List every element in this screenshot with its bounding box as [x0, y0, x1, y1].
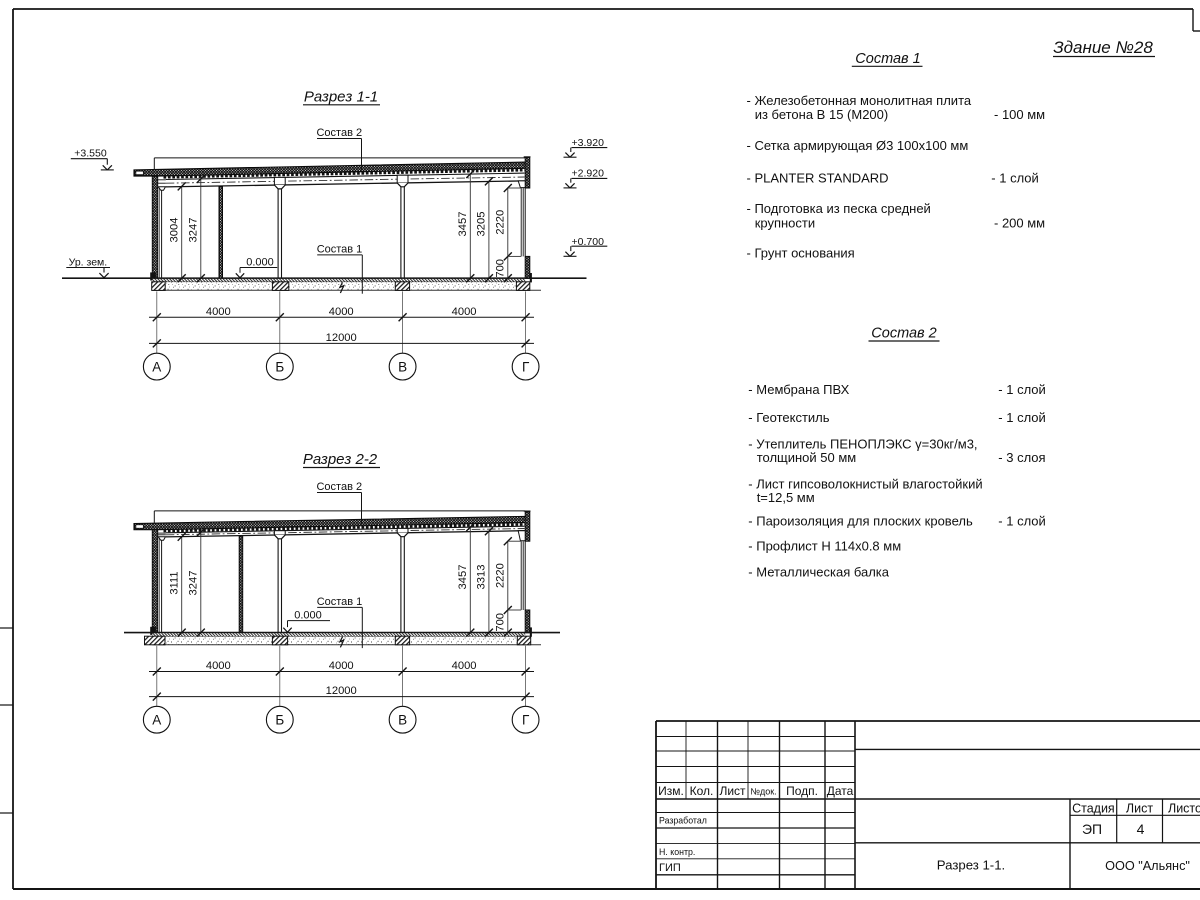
svg-text:- Железобетонная монолитная п: - Железобетонная монолитная плита — [747, 93, 972, 108]
svg-text:- 1 слой: - 1 слой — [991, 171, 1039, 186]
svg-text:Дата: Дата — [827, 784, 854, 798]
svg-text:- 100 мм: - 100 мм — [994, 107, 1045, 122]
svg-text:4000: 4000 — [452, 660, 477, 672]
svg-text:12000: 12000 — [326, 332, 357, 344]
svg-text:3247: 3247 — [188, 218, 200, 243]
svg-text:4000: 4000 — [329, 306, 354, 318]
svg-text:Состав 2: Состав 2 — [871, 326, 936, 342]
svg-text:- 1 слой: - 1 слой — [998, 382, 1046, 397]
svg-text:ГИП: ГИП — [659, 862, 681, 874]
svg-text:В: В — [398, 713, 407, 728]
svg-text:3205: 3205 — [476, 212, 488, 237]
svg-text:3247: 3247 — [188, 571, 200, 596]
svg-text:- Пароизоляция для плоских кро: - Пароизоляция для плоских кровель — [748, 514, 973, 529]
svg-text:Состав 1: Состав 1 — [317, 596, 363, 608]
svg-text:Разрез 1-1.: Разрез 1-1. — [937, 858, 1005, 873]
svg-text:- PLANTER STANDARD: - PLANTER STANDARD — [747, 171, 889, 186]
svg-text:Состав 2: Состав 2 — [316, 481, 362, 493]
svg-text:Г: Г — [522, 360, 530, 375]
svg-text:крупности: крупности — [755, 216, 815, 231]
svg-text:В: В — [398, 360, 407, 375]
svg-text:- Грунт основания: - Грунт основания — [747, 246, 855, 261]
svg-text:t=12,5 мм: t=12,5 мм — [757, 490, 815, 505]
svg-text:3457: 3457 — [457, 565, 469, 590]
svg-text:- 1 слой: - 1 слой — [998, 514, 1046, 529]
svg-text:ООО "Альянс": ООО "Альянс" — [1105, 859, 1190, 873]
svg-text:- Мембрана ПВХ: - Мембрана ПВХ — [748, 382, 849, 397]
svg-text:А: А — [152, 360, 161, 375]
svg-text:Разрез 2-2: Разрез 2-2 — [303, 451, 378, 468]
svg-text:- 200 мм: - 200 мм — [994, 216, 1045, 231]
svg-text:4000: 4000 — [329, 660, 354, 672]
svg-text:Разрез 1-1: Разрез 1-1 — [304, 89, 378, 106]
svg-text:из бетона В 15 (М200): из бетона В 15 (М200) — [755, 107, 889, 122]
svg-text:Г: Г — [522, 713, 530, 728]
svg-text:Кол.: Кол. — [690, 784, 714, 798]
svg-text:4000: 4000 — [452, 306, 477, 318]
svg-text:2220: 2220 — [494, 210, 506, 235]
svg-text:4000: 4000 — [206, 306, 231, 318]
svg-text:Стадия: Стадия — [1072, 802, 1115, 816]
svg-text:+3.550: +3.550 — [74, 148, 107, 160]
svg-text:- 3 слоя: - 3 слоя — [998, 450, 1045, 465]
svg-text:Лист: Лист — [1126, 802, 1153, 816]
svg-text:2220: 2220 — [494, 563, 506, 588]
svg-text:Состав 1: Состав 1 — [317, 243, 363, 255]
svg-text:3313: 3313 — [476, 565, 488, 590]
svg-text:12000: 12000 — [326, 685, 357, 697]
svg-text:700: 700 — [494, 613, 506, 632]
svg-text:4: 4 — [1137, 821, 1145, 837]
svg-text:Подп.: Подп. — [786, 784, 818, 798]
svg-text:Б: Б — [275, 360, 284, 375]
svg-text:Состав 2: Состав 2 — [316, 127, 362, 139]
svg-text:№док.: №док. — [750, 787, 776, 797]
svg-text:Состав 1: Состав 1 — [855, 51, 920, 67]
svg-text:4000: 4000 — [206, 660, 231, 672]
svg-text:Б: Б — [275, 713, 284, 728]
svg-text:А: А — [152, 713, 161, 728]
svg-text:0.000: 0.000 — [294, 610, 322, 622]
svg-text:Разработал: Разработал — [659, 816, 707, 826]
svg-text:Лист: Лист — [719, 784, 746, 798]
svg-text:Листов: Листов — [1168, 802, 1200, 816]
svg-text:- Профлист Н 114х0.8 мм: - Профлист Н 114х0.8 мм — [748, 539, 901, 554]
svg-text:Изм.: Изм. — [658, 784, 684, 798]
svg-text:- Геотекстиль: - Геотекстиль — [748, 410, 829, 425]
svg-text:толщиной 50 мм: толщиной 50 мм — [757, 450, 857, 465]
svg-text:- 1 слой: - 1 слой — [998, 410, 1046, 425]
svg-text:- Сетка армирующая Ø3 100х100: - Сетка армирующая Ø3 100х100 мм — [747, 138, 969, 153]
svg-text:3111: 3111 — [169, 571, 181, 594]
svg-text:- Металлическая балка: - Металлическая балка — [748, 565, 889, 580]
svg-text:Ур. зем.: Ур. зем. — [69, 257, 108, 269]
svg-text:0.000: 0.000 — [246, 257, 274, 269]
svg-text:ЭП: ЭП — [1082, 821, 1102, 837]
svg-text:- Подготовка из песка средней: - Подготовка из песка средней — [747, 201, 931, 216]
svg-text:700: 700 — [494, 259, 506, 278]
svg-text:3004: 3004 — [169, 218, 181, 243]
svg-text:Здание №28: Здание №28 — [1053, 38, 1153, 57]
svg-text:Н. контр.: Н. контр. — [659, 847, 695, 857]
svg-text:3457: 3457 — [457, 212, 469, 237]
